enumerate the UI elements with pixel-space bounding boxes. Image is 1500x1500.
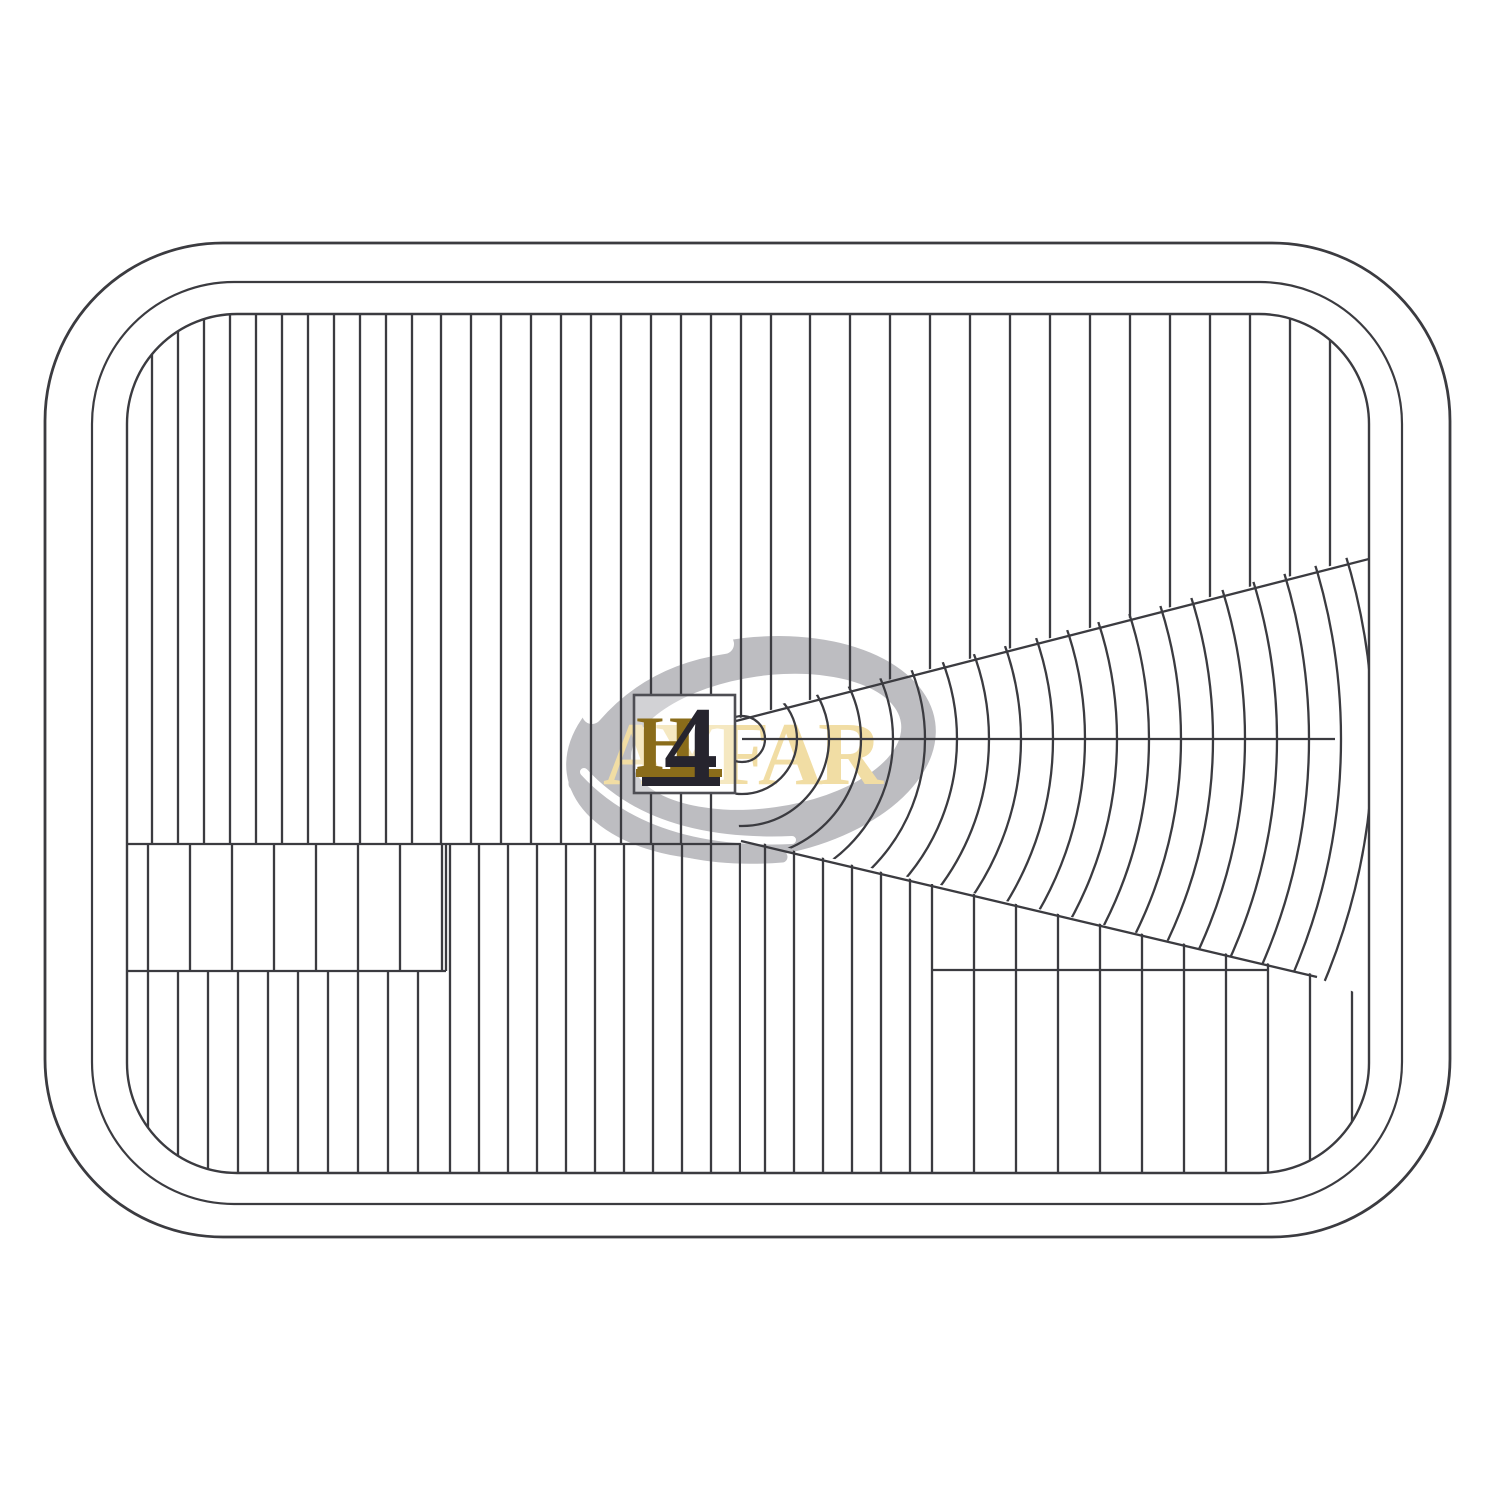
rib-region-1	[148, 305, 442, 1180]
h4-marking: H 4	[634, 686, 735, 805]
headlamp-lens-product-image: AYFAR H 4	[0, 0, 1500, 1500]
lens-flute-pattern	[111, 108, 1373, 1370]
rib-region-5	[974, 305, 1352, 1180]
h4-marking-4: 4	[664, 686, 718, 805]
headlamp-lens-drawing: AYFAR H 4	[0, 0, 1500, 1500]
